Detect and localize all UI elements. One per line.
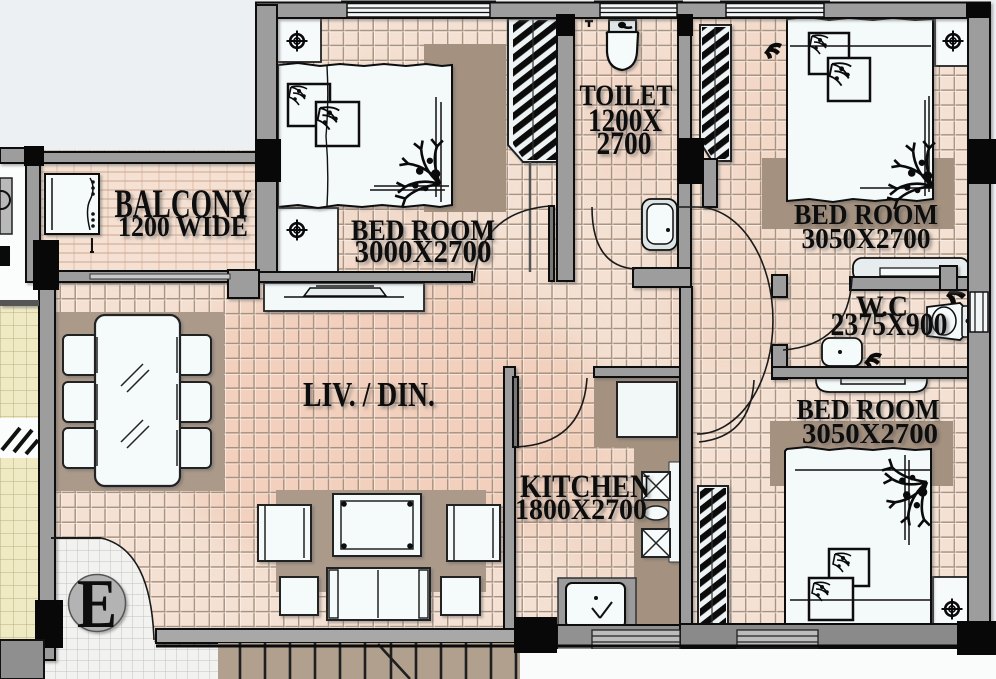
svg-text:3000X2700: 3000X2700 [355,233,492,269]
svg-text:1800X2700: 1800X2700 [515,493,647,526]
svg-text:LIV. / DIN.: LIV. / DIN. [303,375,435,414]
svg-text:1200 WIDE: 1200 WIDE [118,211,248,243]
svg-text:3050X2700: 3050X2700 [802,418,938,450]
svg-text:E: E [77,566,117,643]
svg-text:2700: 2700 [597,126,652,162]
svg-text:2375X900: 2375X900 [831,307,948,343]
svg-text:3050X2700: 3050X2700 [802,223,931,255]
